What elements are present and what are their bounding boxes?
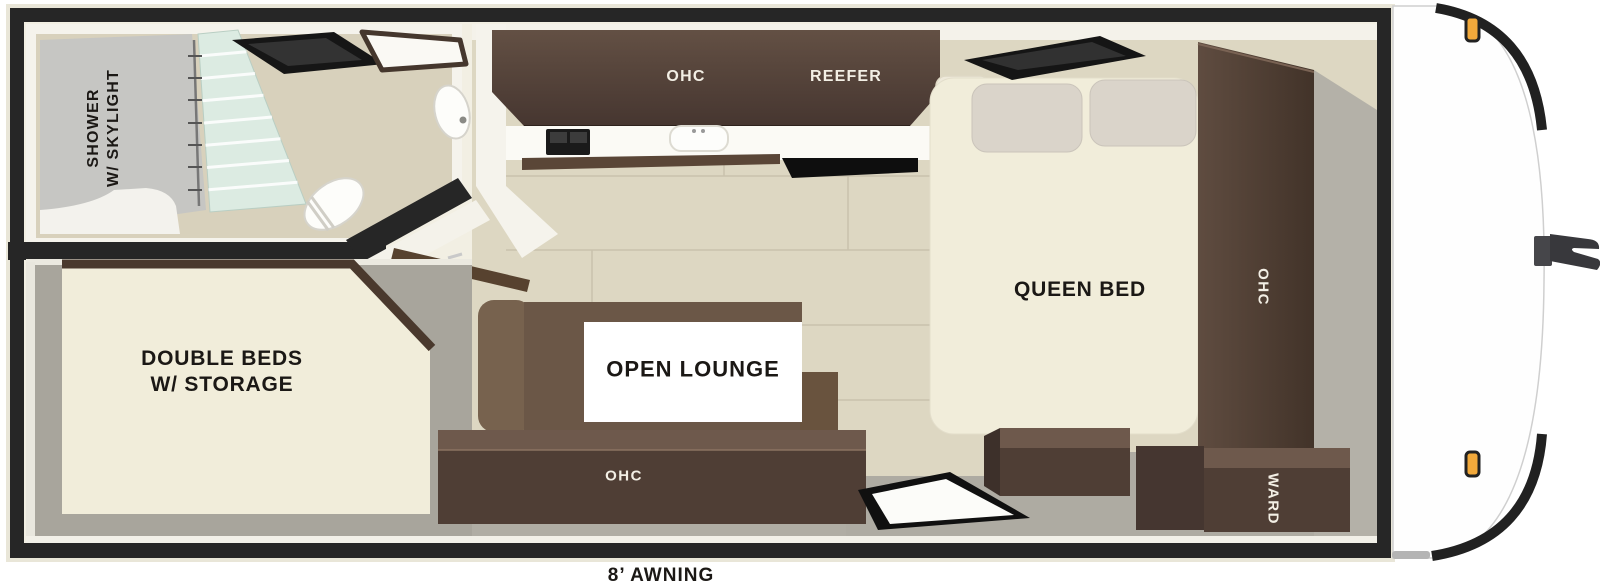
bedroom-wall-rim-left (26, 262, 35, 536)
floorplan-drawing (0, 0, 1600, 586)
wardrobe-top (1204, 448, 1350, 468)
bath-bedroom-divider-wall (8, 242, 386, 260)
marker-light-top-icon (1466, 17, 1479, 41)
lounge-label-panel (584, 322, 802, 422)
kitchen-overhead-cabinet (492, 30, 940, 126)
sofa-armrest (478, 300, 532, 432)
sink-knob-left (692, 129, 696, 133)
stove-burner-right (570, 132, 587, 143)
hitch-jack (1534, 236, 1552, 266)
lounge-cabinet-top (438, 430, 866, 450)
rear-bedroom (26, 259, 472, 536)
pillow-left (972, 84, 1082, 152)
kitchen (492, 30, 990, 178)
sink-knob-right (701, 129, 705, 133)
sofa-end-cushion (800, 372, 838, 432)
bedside-overhead-cabinet (1198, 42, 1314, 452)
bottom-wall-rim (26, 536, 1377, 543)
nose-sill (1392, 551, 1430, 559)
double-bed (62, 266, 430, 514)
kitchen-sink-icon (670, 126, 728, 151)
pillow-right (1090, 80, 1196, 146)
sink-faucet-icon (460, 117, 467, 124)
storage-box-side (984, 428, 1000, 496)
under-bed-storage (1000, 448, 1130, 496)
bathroom-wall-rim-left (26, 24, 36, 248)
marker-light-bottom-icon (1466, 452, 1479, 476)
wardrobe-side (1136, 446, 1204, 530)
storage-box-top (1000, 428, 1130, 448)
front-bedroom (930, 36, 1350, 532)
lounge (438, 300, 866, 524)
hitch-coupler-icon (1550, 234, 1600, 270)
trailer-nose (1392, 6, 1600, 559)
wardrobe (1204, 468, 1350, 532)
skylight-icon (362, 32, 466, 70)
floorplan-canvas: SHOWER W/ SKYLIGHT OHC REEFER QUEEN BED … (0, 0, 1600, 586)
stove-burner-left (550, 132, 567, 143)
